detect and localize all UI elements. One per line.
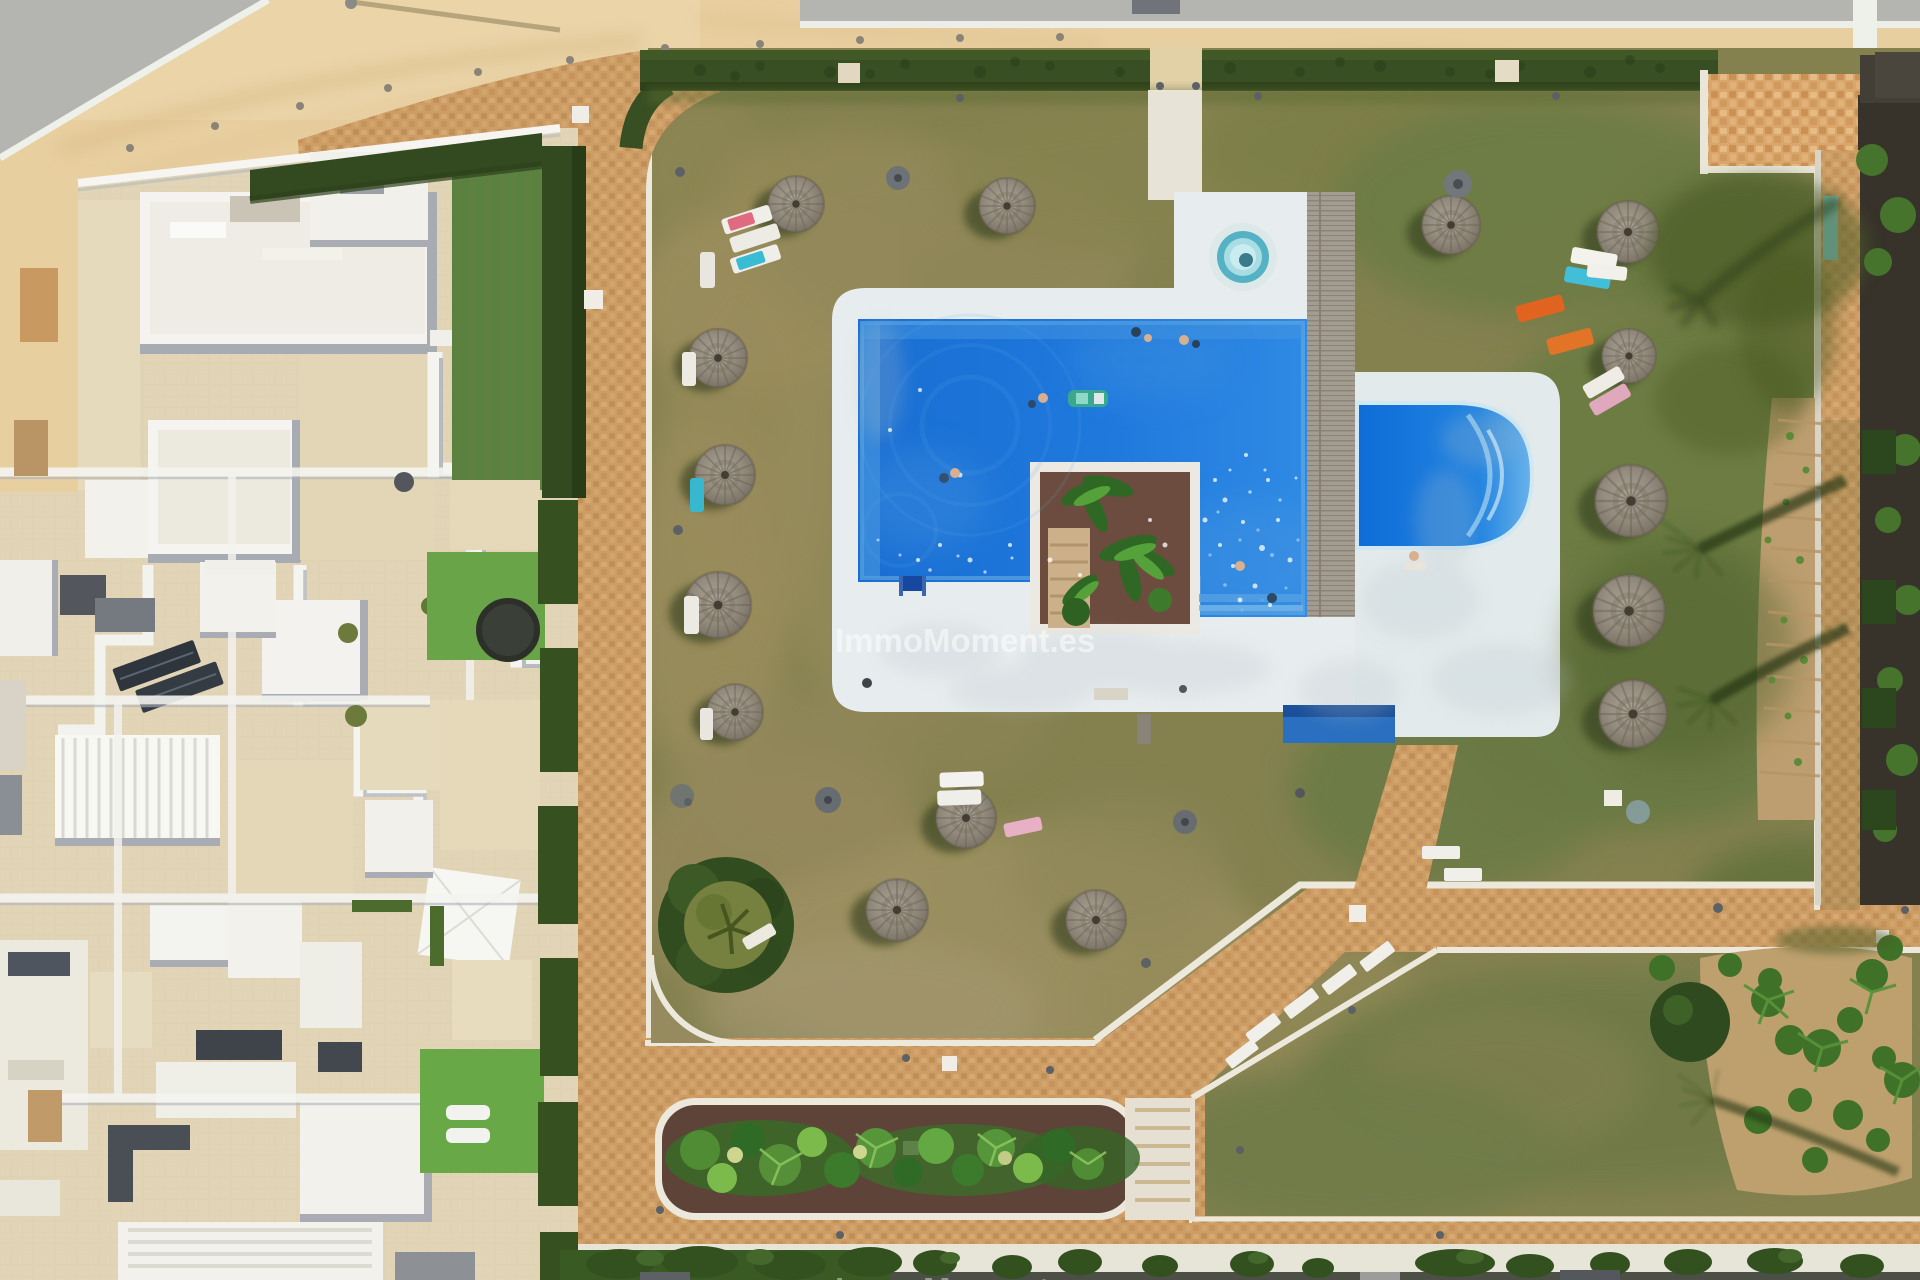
svg-text:ImmoMoment.es: ImmoMoment.es <box>835 1271 1095 1280</box>
svg-text:ImmoMoment.es: ImmoMoment.es <box>835 622 1095 659</box>
